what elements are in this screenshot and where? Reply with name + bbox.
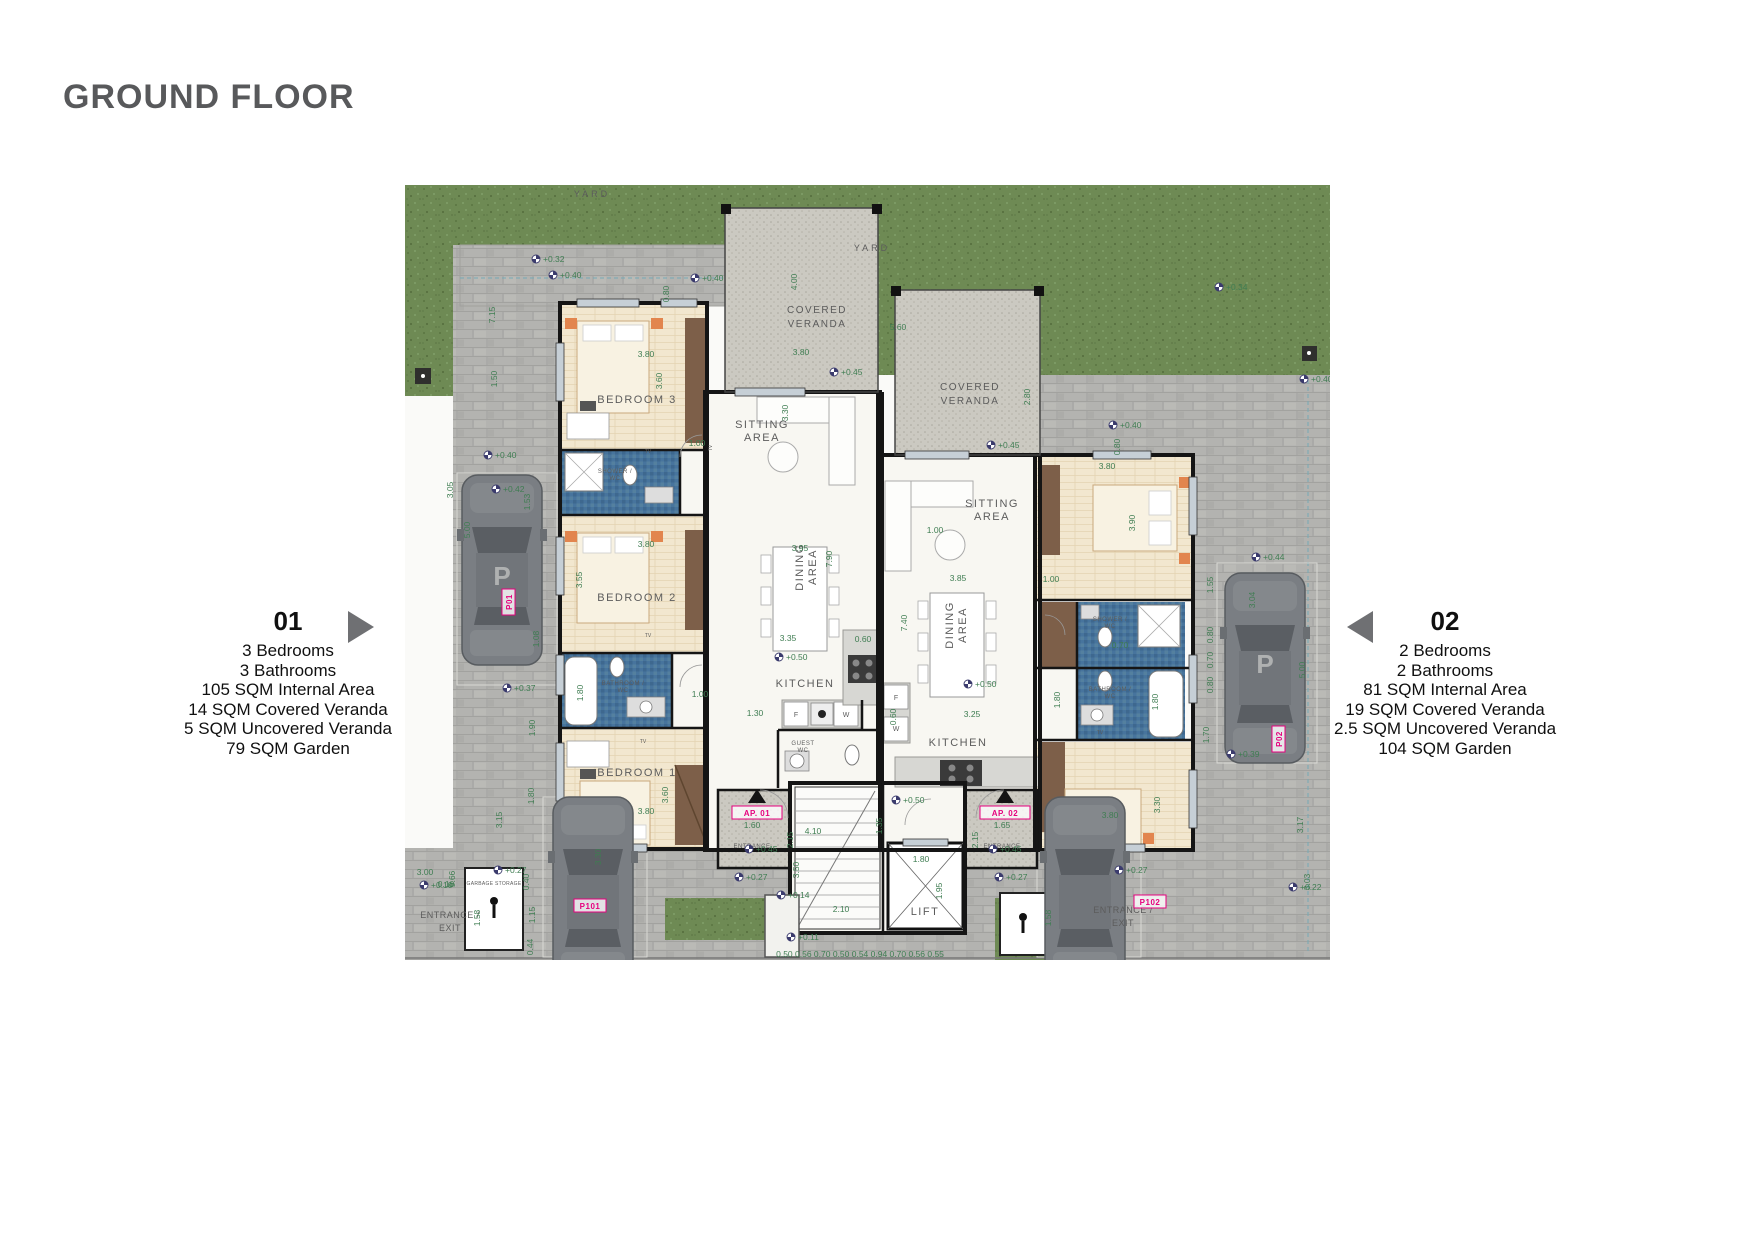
veranda-02-floor [895, 290, 1040, 455]
unit-01-details: 3 Bedrooms3 Bathrooms105 SQM Internal Ar… [123, 641, 453, 758]
plan-tag-label: P101 [580, 902, 601, 911]
level-marker: +0.50 [892, 795, 925, 805]
dim-label: 3.80 [1102, 810, 1119, 820]
floor-plan: P P BEDROOM 3BEDROOM 2BEDROOM 1SITTINGAR… [405, 185, 1330, 960]
dim-label: 3.05 [445, 481, 455, 498]
level-label: +0.50 [975, 679, 997, 689]
room-label: TV [645, 633, 652, 639]
plan-tag: P01 [502, 589, 515, 615]
dim-label: 1.53 [522, 493, 532, 510]
level-label: +0.45 [841, 367, 863, 377]
unit-01-number: 01 [123, 606, 453, 637]
dim-label: 3.15 [494, 811, 504, 828]
level-marker: +0.22 [1289, 882, 1322, 892]
dim-label: 3.35 [780, 633, 797, 643]
level-label: +0.37 [514, 683, 536, 693]
room-label: W [893, 726, 900, 733]
unit-01-info: 01 3 Bedrooms3 Bathrooms105 SQM Internal… [123, 606, 453, 758]
dim-label: 1.08 [531, 630, 541, 647]
level-label: +0.45 [998, 440, 1020, 450]
room-label: GARBAGE STORAGE [467, 881, 522, 887]
wardrobe [1040, 465, 1060, 555]
page-title: GROUND FLOOR [63, 78, 355, 117]
dim-label: 1.00 [692, 689, 709, 699]
unit-02-arrow-icon [1347, 611, 1373, 643]
level-label: +0.32 [543, 254, 565, 264]
dim-label: 7.40 [899, 614, 909, 631]
level-label: +0.40 [560, 270, 582, 280]
dim-label: 0.60 [888, 708, 898, 725]
dim-label: 3.95 [792, 543, 809, 553]
room-label: TV [640, 739, 647, 745]
dim-label: 3.55 [574, 571, 584, 588]
dim-label: 1.50 [489, 370, 499, 387]
level-marker: +0.44 [1252, 552, 1285, 562]
level-marker: +0.34 [1215, 282, 1248, 292]
dim-label: 3.80 [638, 806, 655, 816]
level-label: +0.45 [756, 844, 778, 854]
level-marker: +0.45 [987, 440, 1020, 450]
level-label: +0.50 [903, 795, 925, 805]
dim-label: 3.04 [1247, 591, 1257, 608]
room-label: YARD [854, 243, 890, 253]
wardrobe [675, 765, 707, 845]
level-label: +0.40 [702, 273, 724, 283]
dim-label: 3.80 [638, 349, 655, 359]
dim-label: 3.80 [1099, 461, 1116, 471]
plan-tag-label: P01 [505, 594, 514, 610]
dim-label: 1.95 [934, 882, 944, 899]
parking-p-marking: P [493, 561, 510, 591]
level-marker: +0.39 [1227, 749, 1260, 759]
level-label: +0.40 [495, 450, 517, 460]
level-marker: +0.50 [775, 652, 808, 662]
level-marker: +0.45 [989, 844, 1022, 854]
level-label: +0.27 [1126, 865, 1148, 875]
level-marker: +0.27 [995, 872, 1028, 882]
dim-label: 0.80 [661, 285, 671, 302]
unit-detail-line: 3 Bedrooms [123, 641, 453, 661]
dim-label: 3.60 [654, 372, 664, 389]
dim-label: 2.15 [970, 831, 980, 848]
veranda-01-floor [725, 208, 878, 392]
dim-label: 3.00 [417, 867, 434, 877]
level-marker: +0.37 [503, 683, 536, 693]
level-marker: +0.45 [830, 367, 863, 377]
plan-tag-label: P02 [1275, 731, 1284, 747]
unit-detail-line: 5 SQM Uncovered Veranda [123, 719, 453, 739]
dim-label: 0.80 [1205, 626, 1215, 643]
level-label: +0.10 [431, 880, 453, 890]
level-marker: +0.27 [494, 865, 527, 875]
level-marker: +0.45 [745, 844, 778, 854]
dim-label: 1.80 [1150, 693, 1160, 710]
dim-label: 1.00 [927, 525, 944, 535]
level-label: +0.45 [1000, 844, 1022, 854]
dim-label: 0.80 [1205, 676, 1215, 693]
dim-label: 1.55 [1205, 576, 1215, 593]
dim-label: 1.80 [1052, 691, 1062, 708]
hall-floor [680, 450, 707, 515]
level-label: +0.27 [1006, 872, 1028, 882]
level-marker: +0.11 [787, 932, 819, 942]
dim-label: 3.90 [1127, 514, 1137, 531]
room-label: BEDROOM 1 [597, 767, 677, 779]
dim-label: 1.35 [874, 817, 884, 834]
dim-label: 3.17 [1295, 816, 1305, 833]
bed [1093, 477, 1190, 564]
plan-tag: AP. 01 [732, 806, 782, 819]
party-wall [876, 392, 884, 783]
dim-label: 1.58 [1043, 909, 1053, 926]
dim-label: 0.80 [1112, 438, 1122, 455]
level-marker: +0.14 [777, 890, 810, 900]
dim-label: 3.30 [780, 404, 790, 421]
wardrobe [1039, 602, 1077, 668]
level-marker: +0.42 [492, 484, 525, 494]
level-marker: +0.40 [1300, 374, 1330, 384]
dim-label: 7.15 [487, 306, 497, 323]
level-label: +0.11 [798, 932, 819, 942]
dim-label: 3.25 [964, 709, 981, 719]
dim-label: 3.60 [660, 786, 670, 803]
plan-tag: P101 [574, 899, 606, 912]
plan-tag-label: AP. 01 [744, 809, 770, 818]
unit-detail-line: 79 SQM Garden [123, 739, 453, 759]
dim-label: 0.70 [1112, 640, 1129, 650]
plan-tag: P102 [1134, 895, 1166, 908]
dim-label: 3.80 [638, 539, 655, 549]
room-label: KITCHEN [776, 678, 835, 690]
gate [765, 895, 799, 957]
dim-label: 1.80 [526, 787, 536, 804]
level-label: +0.50 [786, 652, 808, 662]
level-marker: +0.32 [532, 254, 565, 264]
dim-label: 3.80 [793, 347, 810, 357]
dim-label: 0.40 [521, 873, 531, 890]
unit-detail-line: 14 SQM Covered Veranda [123, 700, 453, 720]
unit-01-arrow-icon [348, 611, 374, 643]
level-marker: +0.50 [964, 679, 997, 689]
plan-tag: AP. 02 [980, 806, 1030, 819]
level-label: +0.34 [1226, 282, 1248, 292]
level-label: +0.40 [1120, 420, 1142, 430]
level-marker: +0.10 [420, 880, 453, 890]
plan-tag-label: P102 [1140, 898, 1161, 907]
room-label: TV [1097, 730, 1104, 736]
unit-detail-line: 3 Bathrooms [123, 661, 453, 681]
level-marker: +0.40 [549, 270, 582, 280]
dim-label: 4.10 [805, 826, 822, 836]
dim-label: 1.30 [747, 708, 764, 718]
car [1040, 797, 1130, 960]
dim-label: 5.60 [890, 322, 907, 332]
dim-label: 1.65 [994, 820, 1011, 830]
level-label: +0.22 [1300, 882, 1322, 892]
dim-label: 4.00 [789, 273, 799, 290]
pavement-walkway [460, 245, 725, 306]
dim-label: 0.50 0.56 0.70 0.50 0.54 0.94 0.70 0.56 … [776, 949, 944, 959]
level-label: +0.14 [788, 890, 810, 900]
dim-label: 3.50 [791, 861, 801, 878]
dim-label: 1.00 [689, 438, 706, 448]
unit-detail-line: 105 SQM Internal Area [123, 680, 453, 700]
room-label: W [843, 712, 850, 719]
dim-label: 0.44 [525, 938, 535, 955]
room-label: BEDROOM 2 [597, 592, 677, 604]
dim-label: 3.30 [1152, 796, 1162, 813]
dim-label: 1.00 [1043, 574, 1060, 584]
dim-label: 1.15 [527, 906, 537, 923]
room-label: KITCHEN [929, 737, 988, 749]
hedge [665, 898, 765, 940]
dim-label: 5.00 [462, 521, 472, 538]
level-label: +0.39 [1238, 749, 1260, 759]
dim-label: 0.70 [1205, 651, 1215, 668]
level-marker: +0.40 [691, 273, 724, 283]
room-label: TV [708, 444, 714, 451]
plan-tag-label: AP. 02 [992, 809, 1018, 818]
level-label: +0.27 [505, 865, 527, 875]
room-label: YARD [574, 189, 610, 199]
level-label: +0.44 [1263, 552, 1285, 562]
level-marker: +0.40 [1109, 420, 1142, 430]
level-marker: +0.40 [484, 450, 517, 460]
dim-label: 5.00 [1297, 661, 1307, 678]
plan-tag: P02 [1272, 726, 1285, 752]
dim-label: 2.15 [785, 831, 795, 848]
level-label: +0.40 [1311, 374, 1330, 384]
dim-label: 1.80 [913, 854, 930, 864]
dim-label: 2.80 [1022, 388, 1032, 405]
dim-label: 1.58 [472, 909, 482, 926]
gate [1000, 893, 1046, 955]
level-marker: +0.27 [735, 872, 768, 882]
dim-label: 1.60 [744, 820, 761, 830]
level-label: +0.27 [746, 872, 768, 882]
car [548, 797, 638, 960]
room-label: DININGAREA [944, 601, 969, 649]
room-label: LIFT [911, 906, 940, 918]
level-label: +0.42 [503, 484, 525, 494]
room-label: F [794, 712, 798, 719]
dim-label: 2.10 [833, 904, 850, 914]
level-marker: +0.27 [1115, 865, 1148, 875]
dim-label: 1.70 [1201, 726, 1211, 743]
dim-label: 7.90 [824, 550, 834, 567]
dim-label: 3.85 [950, 573, 967, 583]
parking-p-marking: P [1256, 649, 1273, 679]
room-label: TV [645, 449, 652, 455]
dim-label: 3.30 [593, 848, 603, 865]
floor-plan-drawing: P P BEDROOM 3BEDROOM 2BEDROOM 1SITTINGAR… [405, 185, 1330, 960]
dim-label: 1.90 [527, 719, 537, 736]
room-label: BEDROOM 3 [597, 394, 677, 406]
dim-label: 0.60 [855, 634, 872, 644]
room-label: F [894, 695, 898, 702]
dim-label: 1.80 [575, 684, 585, 701]
